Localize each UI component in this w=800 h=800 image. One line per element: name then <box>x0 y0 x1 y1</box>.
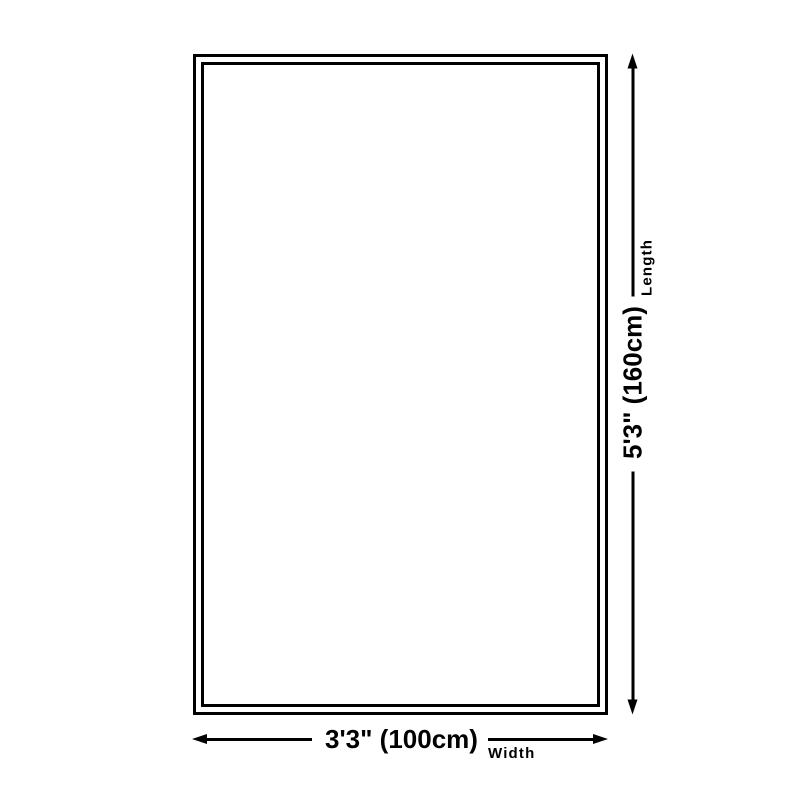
arrow-right-icon <box>593 734 608 744</box>
arrow-down-icon <box>628 700 638 715</box>
width-dimension: 3'3" (100cm) Width <box>192 711 608 767</box>
arrow-up-icon <box>628 54 638 69</box>
size-diagram: 5'3" (160cm) Length 3'3" (100cm) Width <box>0 0 800 800</box>
length-value: 5'3" (160cm) <box>620 306 646 459</box>
width-dimension-line: Width <box>488 738 593 741</box>
rug-outline-inner <box>201 62 600 707</box>
length-dimension-line <box>631 472 634 700</box>
length-dimension: 5'3" (160cm) Length <box>605 54 661 715</box>
width-label: Width <box>488 746 536 761</box>
width-dimension-line <box>207 738 312 741</box>
rug-outline-outer <box>193 54 608 715</box>
width-value: 3'3" (100cm) <box>325 726 478 752</box>
length-dimension-line: Length <box>631 69 634 297</box>
arrow-left-icon <box>192 734 207 744</box>
length-label: Length <box>639 239 654 296</box>
